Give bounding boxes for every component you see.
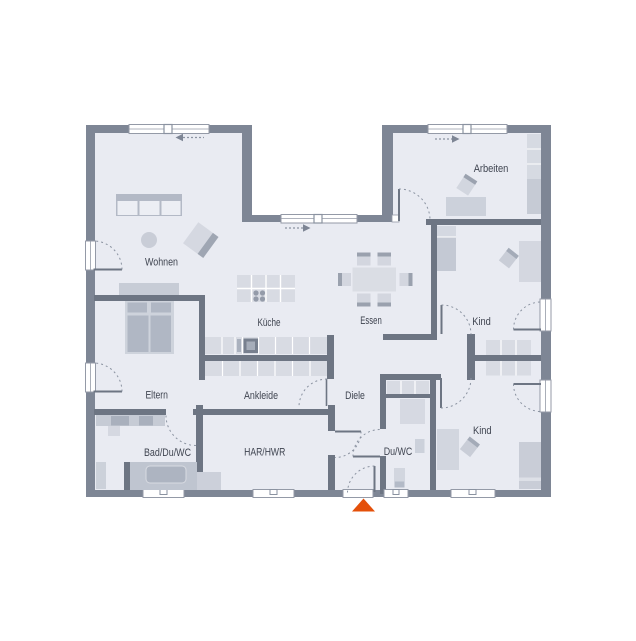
svg-text:Wohnen: Wohnen (145, 257, 178, 269)
svg-text:HAR/HWR: HAR/HWR (244, 447, 285, 459)
svg-text:Ankleide: Ankleide (244, 390, 278, 402)
svg-text:Bad/Du/WC: Bad/Du/WC (144, 447, 191, 459)
svg-text:Kind: Kind (473, 425, 492, 437)
svg-text:Du/WC: Du/WC (384, 446, 413, 458)
svg-text:Küche: Küche (258, 317, 281, 329)
svg-text:Arbeiten: Arbeiten (474, 163, 509, 175)
svg-text:Kind: Kind (472, 316, 491, 328)
svg-text:Essen: Essen (360, 315, 382, 327)
svg-text:Diele: Diele (345, 390, 365, 402)
svg-text:Eltern: Eltern (145, 389, 168, 401)
